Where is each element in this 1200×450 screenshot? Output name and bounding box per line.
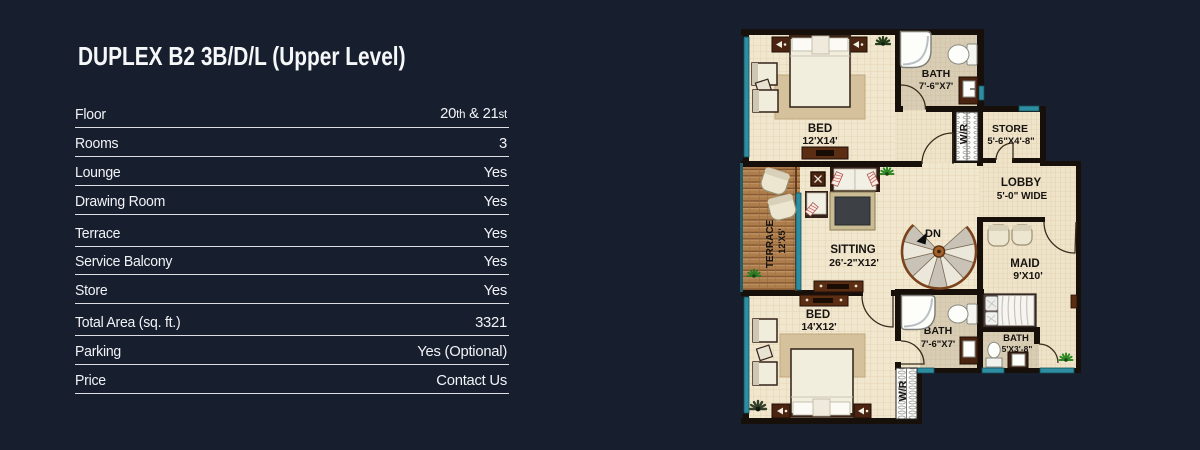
svg-text:SITTING: SITTING — [830, 244, 875, 256]
svg-text:STORE: STORE — [992, 123, 1028, 135]
svg-text:5'-6"X4'-8": 5'-6"X4'-8" — [987, 136, 1034, 147]
svg-text:BED: BED — [806, 309, 830, 321]
svg-text:5'-0" WIDE: 5'-0" WIDE — [997, 191, 1048, 202]
svg-text:BED: BED — [808, 123, 832, 135]
svg-text:7'-6"X7': 7'-6"X7' — [919, 81, 953, 92]
svg-text:14'X12': 14'X12' — [801, 321, 836, 333]
svg-text:MAID: MAID — [1010, 258, 1039, 270]
svg-text:LOBBY: LOBBY — [1001, 177, 1042, 189]
svg-text:TERRACE: TERRACE — [765, 220, 776, 269]
svg-text:12'X5': 12'X5' — [777, 228, 787, 253]
svg-text:12'X14': 12'X14' — [802, 135, 837, 147]
svg-text:26'-2"X12': 26'-2"X12' — [829, 257, 879, 269]
svg-text:DN: DN — [925, 228, 941, 240]
svg-text:BATH: BATH — [1003, 333, 1029, 344]
svg-text:9'X10': 9'X10' — [1013, 270, 1043, 282]
svg-text:BATH: BATH — [922, 68, 950, 80]
svg-text:7'-6"X7': 7'-6"X7' — [921, 339, 955, 350]
svg-text:W/R: W/R — [958, 123, 970, 144]
svg-text:W/R: W/R — [897, 380, 909, 401]
